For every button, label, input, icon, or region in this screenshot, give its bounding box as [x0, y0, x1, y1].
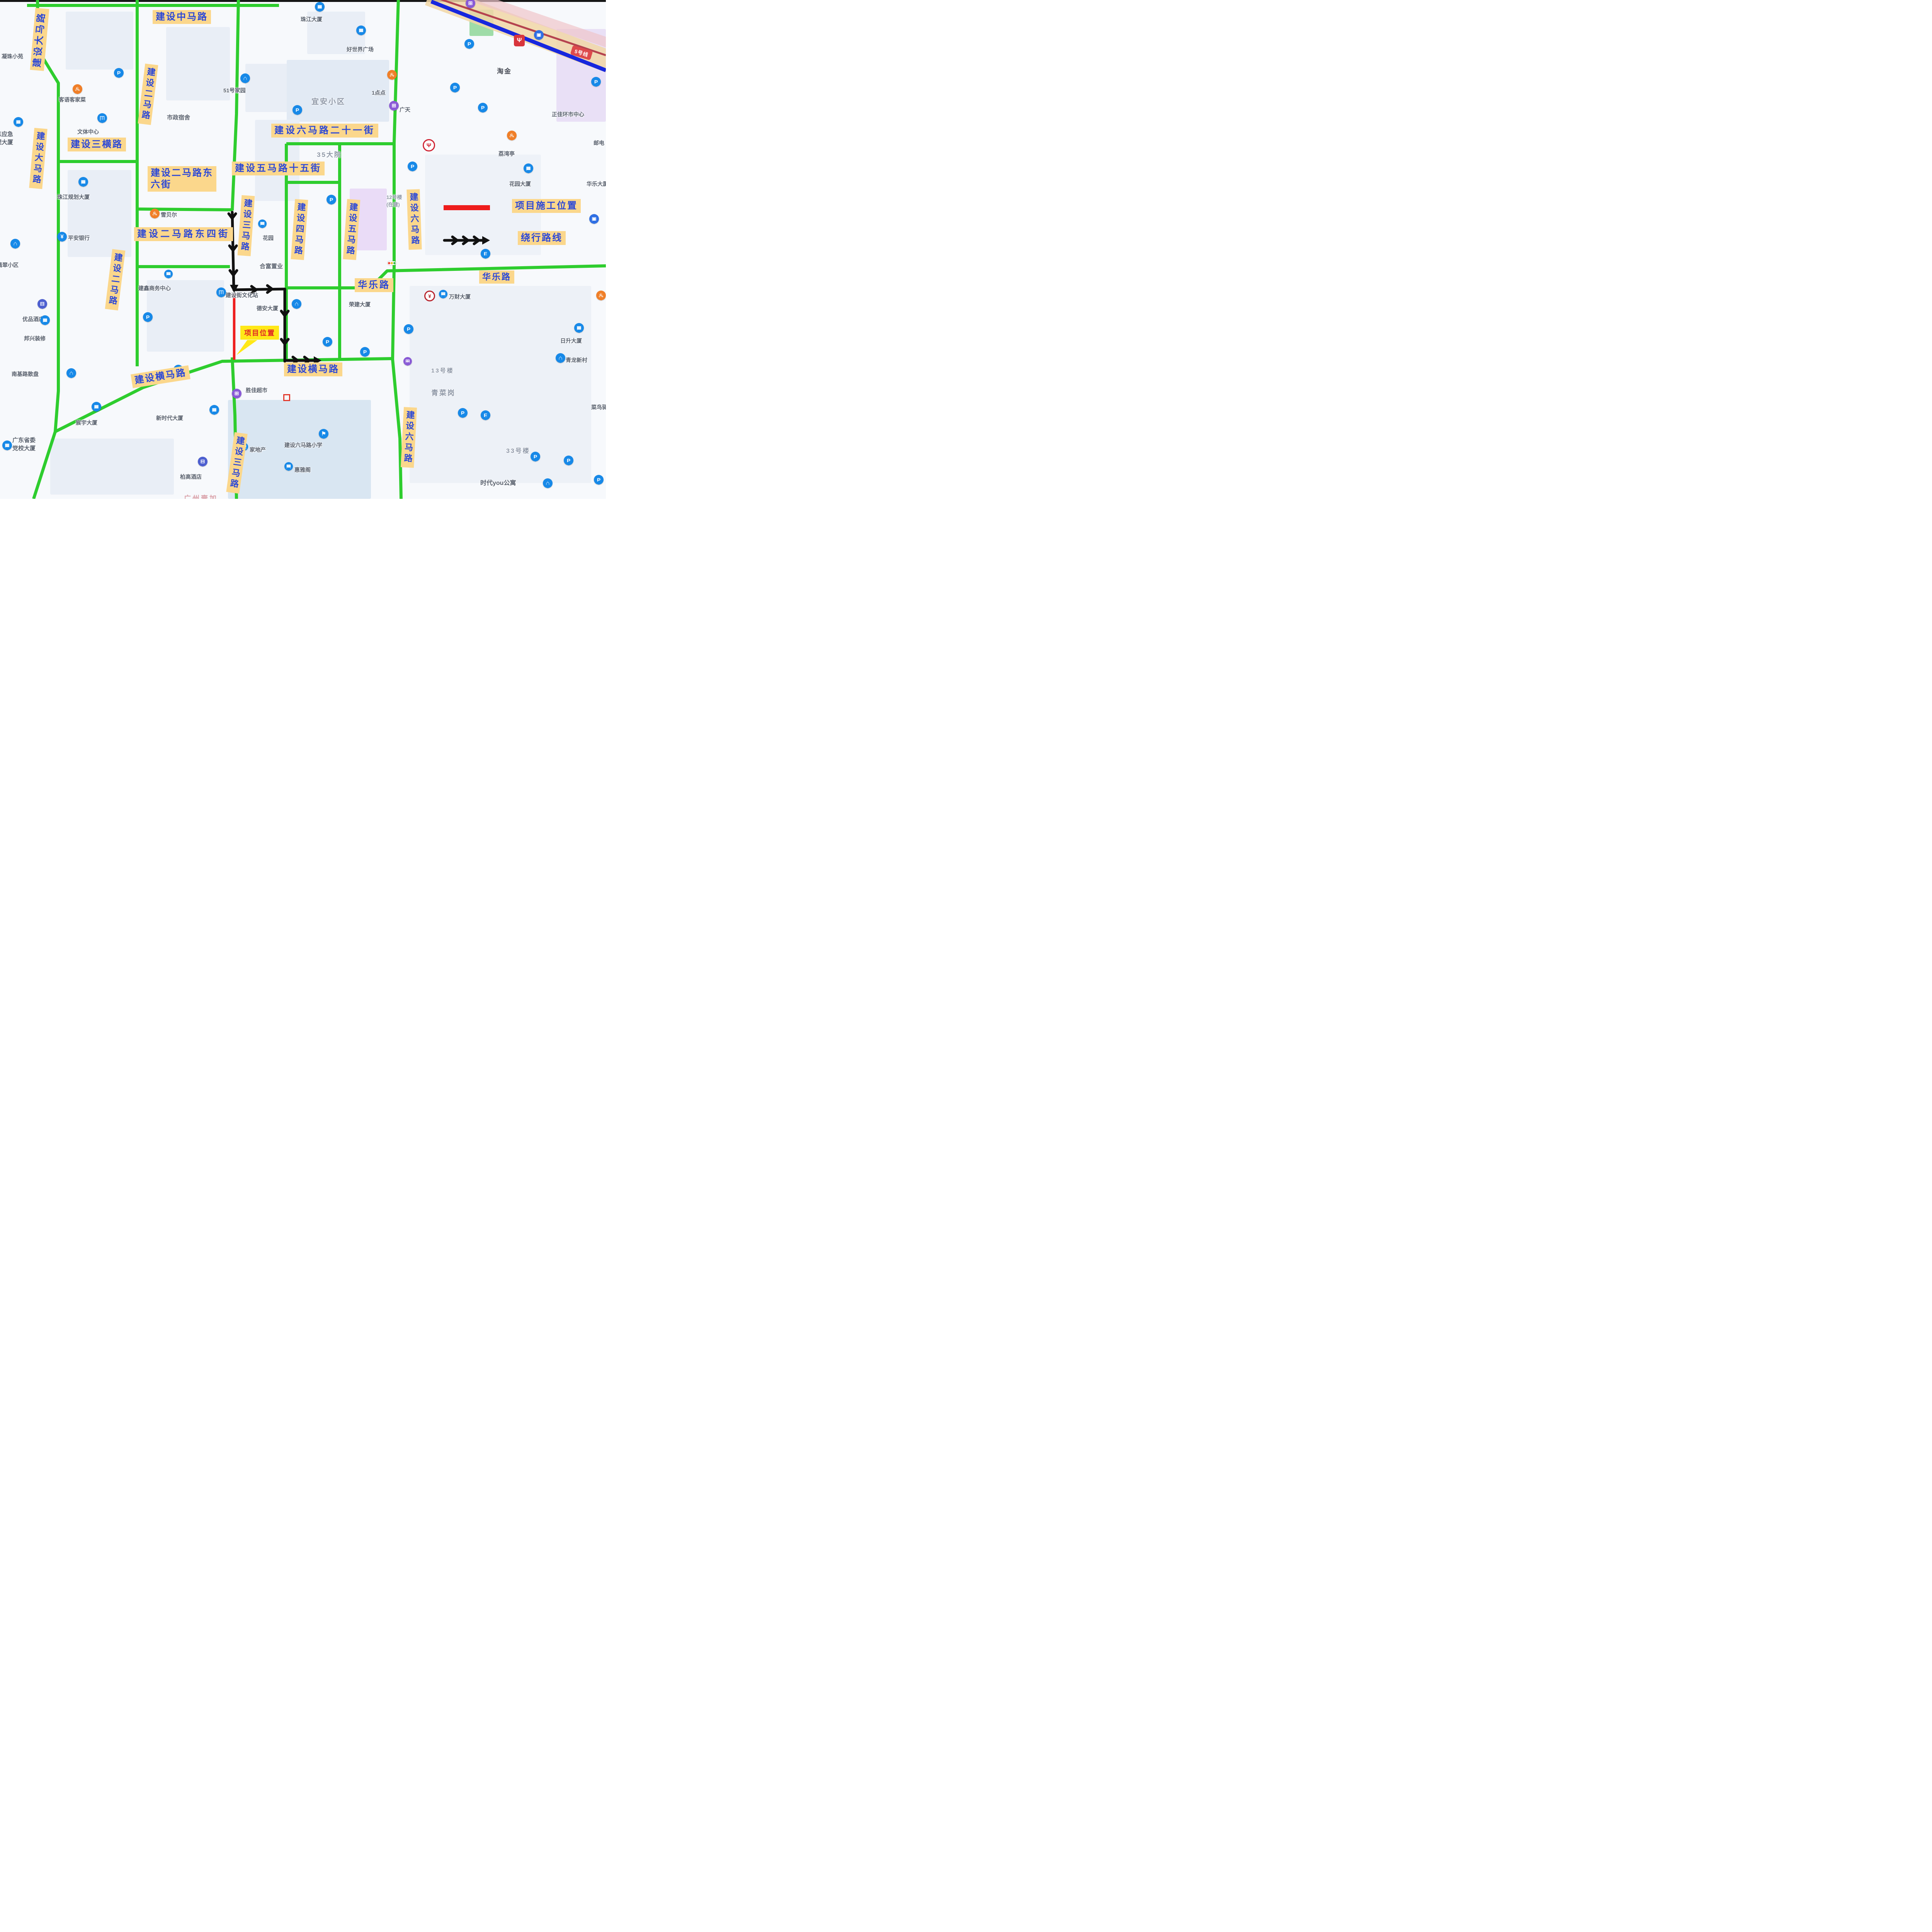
building-pin [524, 163, 533, 173]
poi-label: 时代you公寓 [480, 478, 516, 487]
building-pin [284, 462, 293, 471]
parking-pin [591, 77, 601, 87]
label-huale-lu-left: 华乐路 [355, 278, 393, 292]
label-wuma-15-jie: 建设五马路十五街 [232, 162, 325, 175]
culture-center-pin [97, 113, 107, 123]
parking-pin [458, 408, 468, 418]
area-label: 35大院 [317, 149, 342, 159]
building-pin [292, 299, 301, 309]
poi-label: 凝珠小苑 [2, 53, 23, 60]
building-pin [78, 177, 88, 187]
poi-label: 邮电 [594, 139, 604, 147]
parking-pin [478, 103, 488, 112]
poi-label: 市政宿舍 [167, 113, 190, 121]
poi-label: 青龙新村 [566, 356, 587, 364]
area-label: 青菜岗 [431, 388, 456, 398]
residence-pin [556, 353, 565, 363]
building-pin [574, 323, 584, 333]
poi-line: 党校大厦 [12, 445, 36, 452]
traffic-light-icon [388, 261, 396, 265]
poi-label: 柏高酒店 [180, 473, 202, 481]
building-pin [2, 440, 12, 450]
parking-pin [293, 105, 302, 115]
label-huale-lu-right: 华乐路 [479, 270, 514, 284]
road-jianshe-sanma-lu-north [232, 0, 238, 211]
road-jianshe-dama-lu [34, 0, 58, 499]
label-dong6-jie: 建设二马路东 六街 [148, 166, 216, 192]
shop-pin [389, 101, 399, 111]
parking-pin [143, 312, 153, 322]
building-pin [356, 26, 366, 35]
parking-pin [408, 162, 417, 171]
culture-station-pin [216, 287, 226, 297]
poi-label: 菜鸟驿站 [591, 403, 606, 411]
parking-pin [114, 68, 124, 78]
bus-station-pin [589, 214, 599, 224]
building-pin [40, 315, 50, 325]
restaurant-pin [507, 131, 517, 140]
poi-label: 新时代大厦 [156, 414, 183, 422]
building-pin [209, 405, 219, 415]
poi-label: 华乐大厦 [587, 180, 606, 188]
poi-label: 日升大厦 [560, 337, 582, 345]
area-label: 12号楼 (在建) [386, 193, 402, 208]
poi-label: 广东省委 党校大厦 [12, 436, 36, 452]
label-jianshe-liuma-lu-right: 建设六马路 [406, 189, 422, 250]
poi-label: 宸宇大厦 [76, 419, 97, 427]
road-huale-lu [286, 266, 606, 288]
parking-pin [323, 337, 332, 347]
poi-label: 文体中心 [77, 128, 99, 136]
supermarket-pin [232, 389, 241, 398]
metro-station-icon: Ψ [514, 35, 525, 46]
poi-label: 平安银行 [68, 234, 90, 242]
apartment-pin [543, 478, 553, 488]
poi-label: 万财大厦 [449, 293, 471, 301]
building-pin [14, 117, 23, 127]
metro-logo-icon: Ψ [423, 139, 435, 151]
poi-line: 广东应急 [0, 131, 13, 138]
poi-label: 建鑫商务中心 [138, 284, 171, 292]
poi-label: 客语客家菜 [59, 96, 86, 104]
poi-label: 邦兴装修 [24, 335, 46, 342]
parking-pin [450, 83, 460, 92]
parking-pin [404, 324, 413, 334]
metro-station-name: 淘金 [497, 66, 512, 75]
poi-label: 荔湾亭 [498, 150, 515, 158]
parking-pin [327, 195, 336, 204]
area-label: 13号楼 [431, 366, 454, 374]
label-hengma-lu-center: 建设横马路 [284, 362, 342, 376]
bank-logo-icon: ¥ [424, 291, 435, 301]
school-pin [319, 429, 328, 439]
parking-pin [564, 456, 573, 465]
label-jianshe-sanheng-lu: 建设三横路 [68, 138, 126, 151]
building-pin [92, 402, 101, 412]
area-label: 宜安小区 [311, 96, 345, 106]
poi-label: 南基路散盘 [12, 370, 39, 378]
poi-label: 好世界广场 [347, 46, 374, 53]
poi-label: 翡翠小区 [0, 261, 19, 269]
poi-label: 家地产 [250, 446, 266, 454]
poi-line: 管理大厦 [0, 139, 13, 146]
charging-station-pin [481, 410, 490, 420]
poi-label: 正佳环市中心 [552, 111, 584, 118]
label-dong6-line1: 建设二马路东 [151, 168, 213, 178]
residence-pin [10, 239, 20, 248]
poi-label: 荣建大厦 [349, 301, 371, 308]
poi-line: 12号楼 [386, 194, 402, 200]
bus-station-pin [534, 30, 544, 40]
poi-label: 1点点 [372, 89, 386, 97]
shop-pin [466, 0, 475, 8]
poi-label-faint: 广州壹加 [184, 493, 218, 499]
poi-label: 惠雅阁 [294, 466, 311, 474]
label-dong6-line2: 六街 [151, 179, 172, 190]
building-pin [439, 290, 447, 298]
poi-label: 珠江大厦 [301, 15, 322, 23]
building-pin [258, 219, 267, 228]
legend-construction-label: 项目施工位置 [512, 199, 581, 213]
legend-detour-line [444, 237, 483, 244]
project-location-callout: 项目位置 [240, 326, 279, 340]
hotel-pin [37, 299, 47, 309]
label-liuma-21-jie: 建设六马路二十一街 [271, 124, 378, 138]
poi-label: 珠江规划大厦 [57, 193, 90, 201]
map-canvas: 建设中马路 建设大马路 建设二马路 建设大马路 建设三横路 建设二马路东 六街 … [0, 0, 606, 499]
poi-label: 广东应急 管理大厦 [0, 130, 13, 146]
poi-line: (在建) [386, 202, 400, 207]
bank-pin [57, 232, 67, 241]
poi-label: 51号家园 [223, 87, 246, 94]
legend-construction-line [444, 205, 490, 210]
restaurant-pin [73, 84, 82, 94]
restaurant-pin [596, 291, 606, 300]
poi-label: 胜佳超市 [246, 386, 267, 394]
parking-pin [360, 347, 370, 357]
poi-label: 合富置业 [260, 262, 283, 270]
building-pin [315, 2, 325, 12]
teashop-pin [387, 70, 397, 80]
building-pin [164, 270, 173, 278]
area-label: 33号楼 [506, 446, 530, 455]
legend-detour-arrowhead [482, 236, 490, 245]
poi-line: 广东省委 [12, 437, 36, 444]
poi-label: 德安大厦 [257, 304, 278, 312]
poi-label: 花园大厦 [509, 180, 531, 188]
hotel-pin [198, 457, 207, 466]
poi-label: 花园 [263, 234, 274, 242]
legend-detour-label: 绕行路线 [518, 231, 566, 245]
bakery-pin [150, 209, 160, 218]
poi-label: 建设六马路小学 [284, 441, 322, 449]
charging-station-pin [481, 249, 490, 259]
parking-pin [531, 452, 540, 461]
label-jianshe-zhongma-lu: 建设中马路 [153, 10, 211, 24]
poi-label: 建设街文化站 [226, 291, 258, 299]
residence-pin [240, 73, 250, 83]
residence-pin [66, 368, 76, 378]
parking-pin [594, 475, 604, 485]
shop-pin [403, 357, 412, 366]
parking-pin [464, 39, 474, 49]
project-site-marker [283, 394, 290, 401]
poi-label: 雪贝尔 [161, 211, 177, 219]
label-dong4-jie: 建设二马路东四街 [134, 227, 233, 241]
poi-label: 广天 [400, 106, 410, 114]
